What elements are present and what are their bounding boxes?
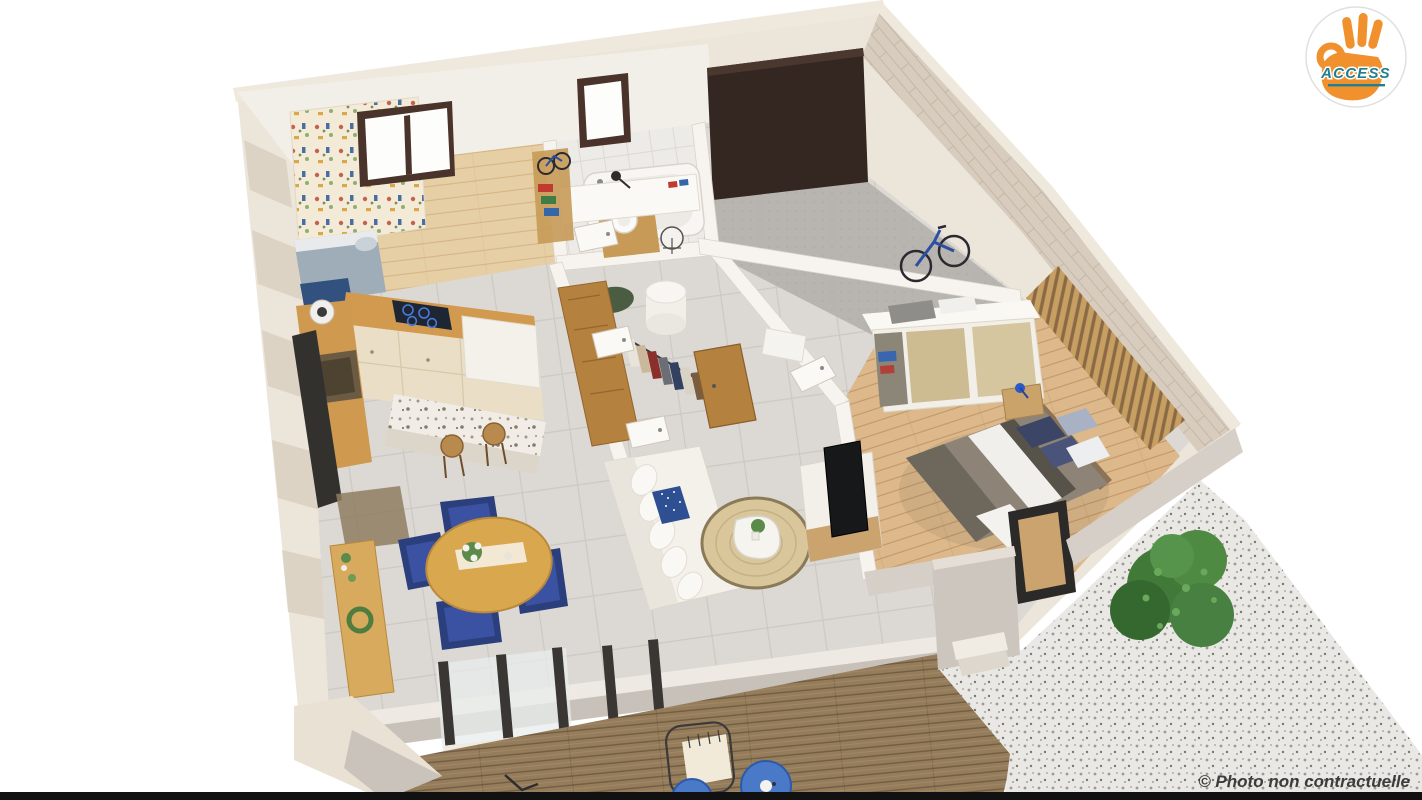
kids-room-window (357, 101, 455, 187)
coffee-table (734, 516, 780, 559)
water-heater (646, 281, 686, 335)
coffee-machine (310, 300, 334, 324)
logo-text: ACCESS (1320, 65, 1391, 82)
terrace-door (1008, 500, 1076, 604)
nightstand (1002, 383, 1044, 420)
tv-screen (824, 441, 868, 537)
bathroom-window (577, 73, 631, 148)
garage-door (707, 48, 868, 200)
floorplan-render: ACCESS © Photo non contractuelle (0, 0, 1422, 800)
kitchen-tall-unit (462, 316, 540, 388)
kids-shelf-bike (532, 148, 574, 244)
watermark-text: © Photo non contractuelle (1198, 772, 1410, 791)
bottom-bar (0, 792, 1422, 800)
agency-logo: ACCESS (1306, 7, 1406, 107)
